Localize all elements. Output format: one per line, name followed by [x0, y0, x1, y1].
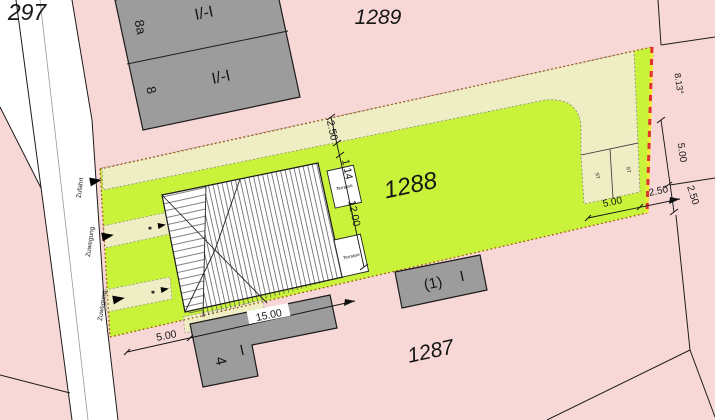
footpath-marker-1: ✱: [148, 226, 152, 232]
site-plan-canvas: ST ST Terrasse Terrasse 8a I/-I 8 I/-I 4…: [0, 0, 715, 420]
parcel-label-1289: 1289: [355, 6, 402, 29]
cadastral-map: ST ST Terrasse Terrasse 8a I/-I 8 I/-I 4…: [0, 0, 715, 420]
footpath-marker-2: ✱: [151, 290, 155, 296]
parcel-label-297: 297: [7, 0, 48, 25]
